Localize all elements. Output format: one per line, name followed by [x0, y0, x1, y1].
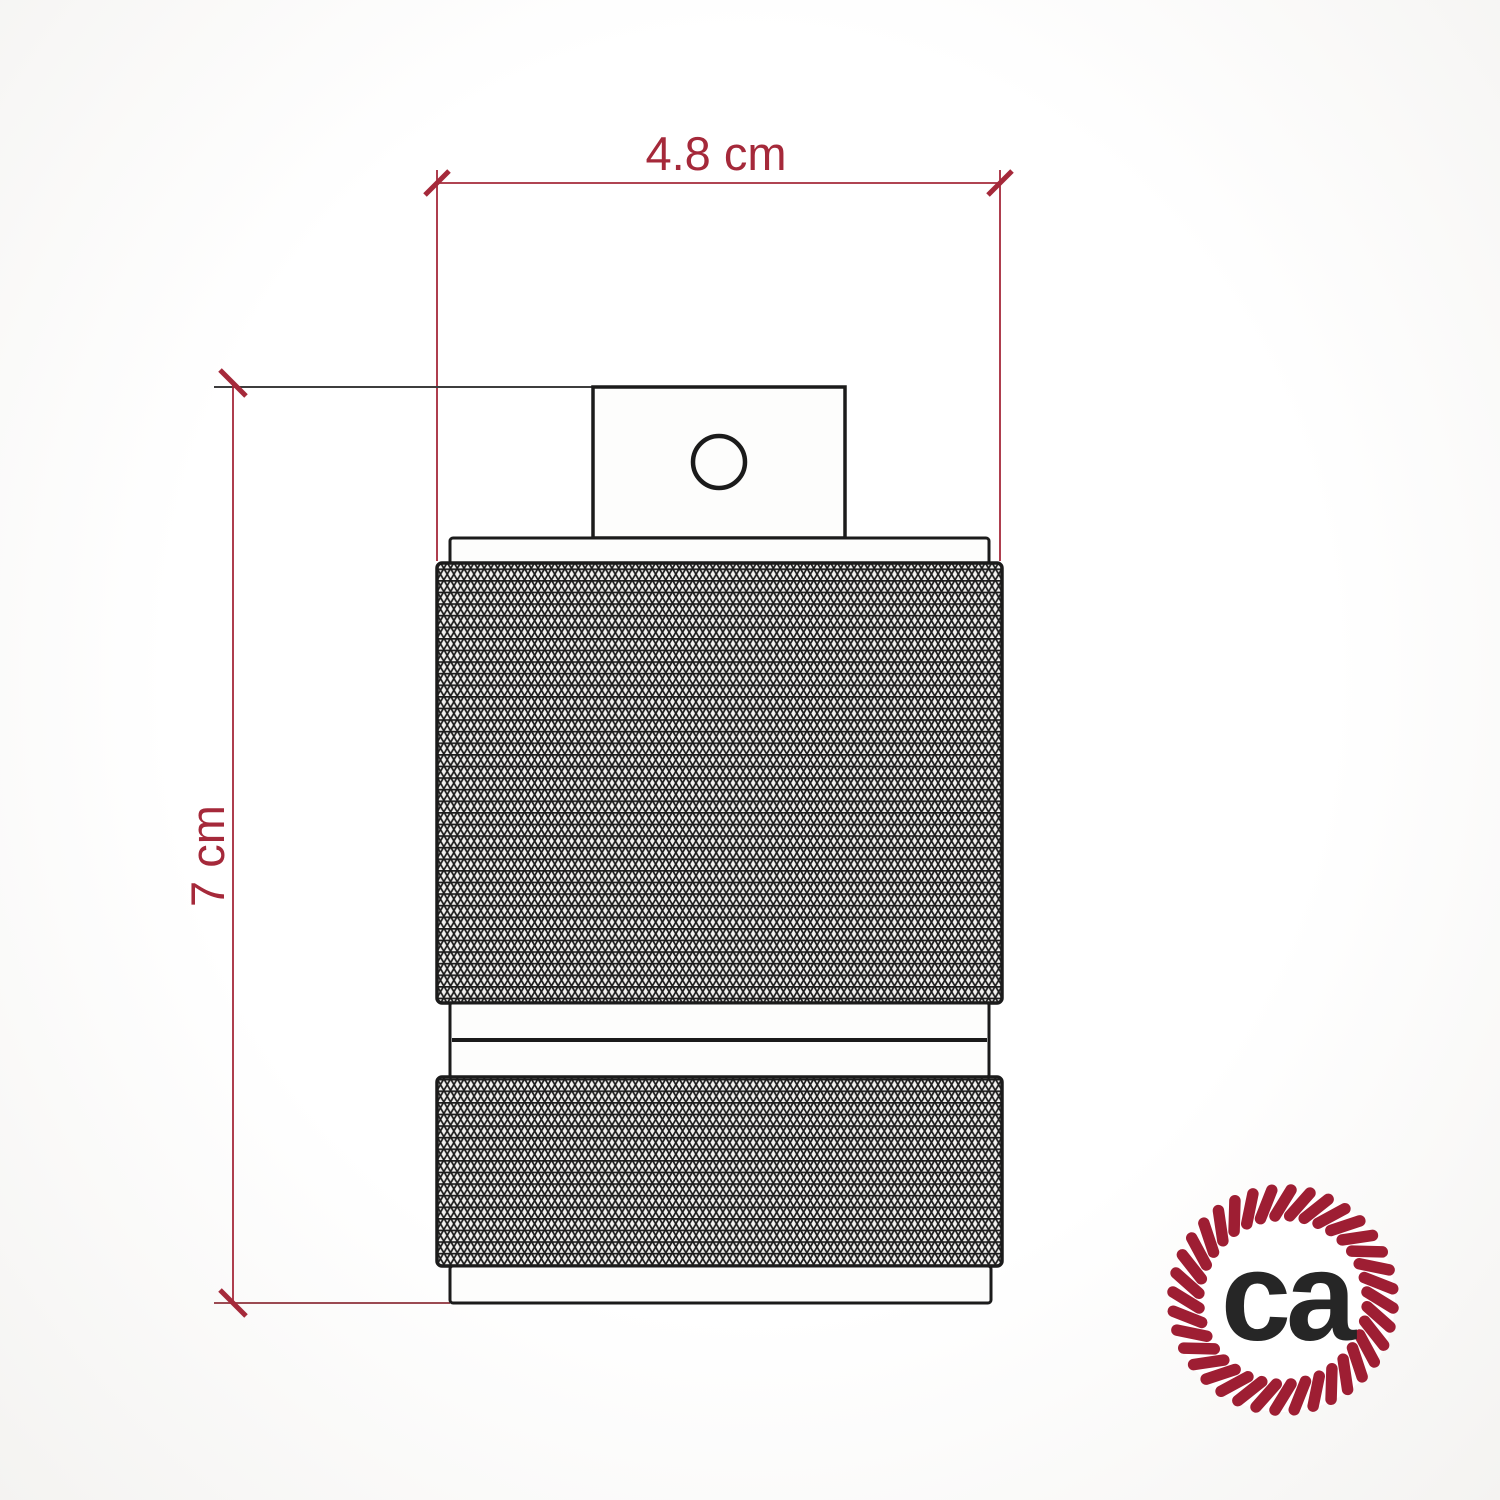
top-flange [450, 538, 989, 564]
diagram-canvas: 4.8 cm 7 cm [0, 0, 1500, 1500]
width-dimension-label: 4.8 cm [645, 127, 786, 180]
logo-text: ca [1221, 1226, 1357, 1367]
upper-knurled-body [437, 563, 1002, 1003]
bottom-plate [450, 1266, 991, 1303]
height-dimension-label: 7 cm [181, 805, 234, 907]
lamp-holder-drawing [437, 387, 1002, 1303]
cable-hole [693, 436, 745, 488]
brand-logo: ca [1171, 1188, 1395, 1412]
lamp-holder-dimension-drawing: 4.8 cm 7 cm [0, 0, 1500, 1500]
lower-knurled-ring [437, 1077, 1002, 1266]
